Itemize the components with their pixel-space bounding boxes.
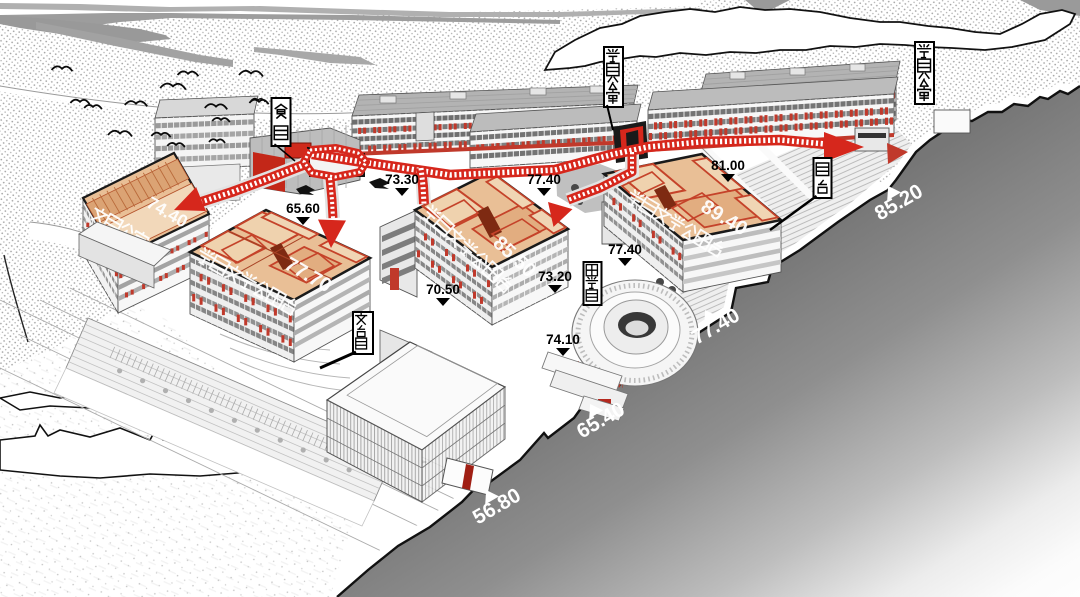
svg-text:70.50: 70.50 xyxy=(426,282,460,297)
svg-text:73.30: 73.30 xyxy=(385,172,419,187)
svg-text:74.10: 74.10 xyxy=(546,332,580,347)
svg-text:65.60: 65.60 xyxy=(286,201,320,216)
svg-text:77.40: 77.40 xyxy=(608,242,642,257)
svg-text:77.40: 77.40 xyxy=(527,172,561,187)
svg-text:73.20: 73.20 xyxy=(538,269,572,284)
svg-text:81.00: 81.00 xyxy=(711,158,745,173)
